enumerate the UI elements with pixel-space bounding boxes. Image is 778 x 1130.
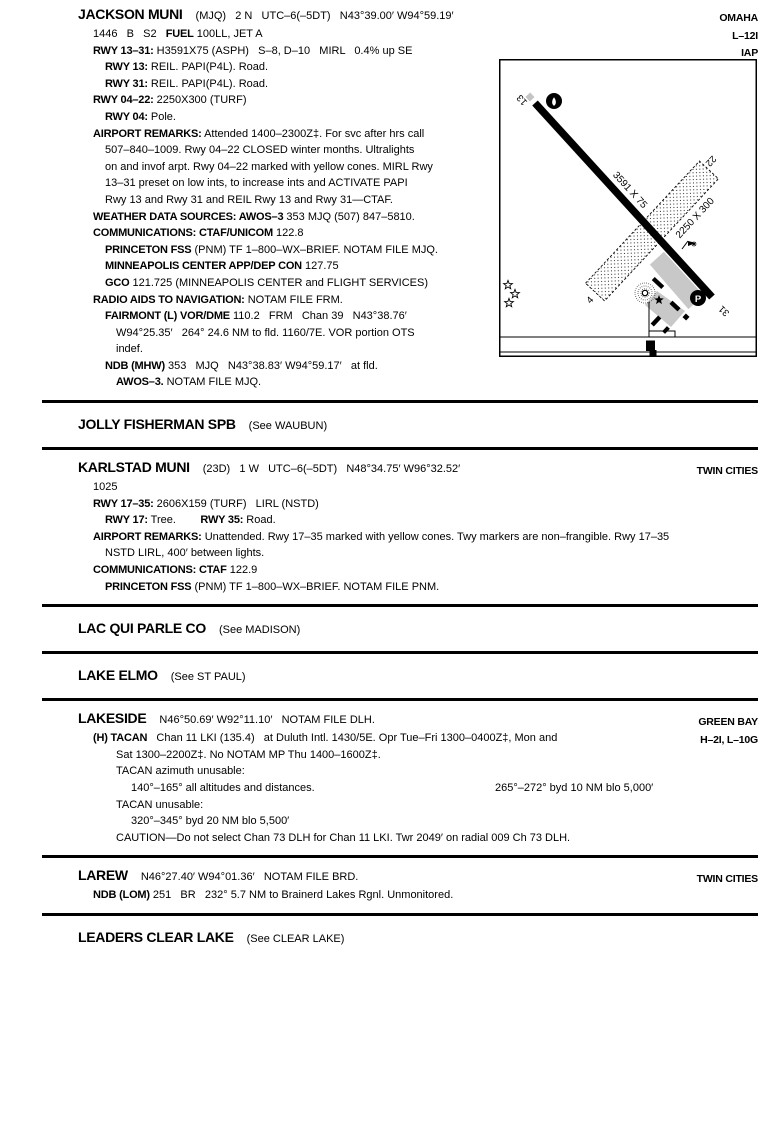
airport-name: LAKE ELMO (78, 667, 158, 683)
text-run: 110.2 FRM Chan 39 N43°38.76′ (230, 310, 407, 322)
airport-name: JACKSON MUNI (78, 6, 183, 22)
text-run: W94°25.35′ 264° 24.6 NM to fld. 1160/7E.… (116, 327, 415, 339)
chart-reference: TWIN CITIES (697, 869, 758, 889)
entry-line: TACAN unusable: (78, 797, 758, 814)
airport-name: JOLLY FISHERMAN SPB (78, 416, 236, 432)
text-run: 127.75 (302, 260, 339, 272)
text-run: NOTAM FILE MJQ. (164, 376, 262, 388)
airport-name: LAC QUI PARLE CO (78, 620, 206, 636)
text-run: Tree. (148, 514, 201, 526)
bold-label: MINNEAPOLIS CENTER APP/DEP CON (105, 260, 302, 272)
text-run: REIL. PAPI(P4L). Road. (148, 78, 268, 90)
entry-jolly-fisherman-spb: JOLLY FISHERMAN SPB(See WAUBUN) (78, 410, 758, 441)
entry-line: RWY 17–35: 2606X159 (TURF) LIRL (NSTD) (78, 496, 758, 513)
heading-suffix: (23D) 1 W UTC–6(–5DT) N48°34.75′ W96°32.… (190, 463, 460, 475)
heading-suffix: (See CLEAR LAKE) (234, 933, 345, 945)
entry-line: RWY 13–31: H3591X75 (ASPH) S–8, D–10 MIR… (78, 43, 758, 60)
bold-label: AWOS–3. (116, 376, 164, 388)
bold-label: AIRPORT REMARKS: (93, 531, 202, 543)
airport-name: LAREW (78, 867, 128, 883)
entry-lakeside: LAKESIDEN46°50.69′ W92°11.10′ NOTAM FILE… (78, 708, 758, 849)
section-divider (42, 698, 758, 701)
text-run: Unattended. Rwy 17–35 marked with yellow… (202, 531, 670, 543)
text-run: 265°–272° byd 10 NM blo 5,000′ (495, 780, 653, 797)
bold-label: RWY 31: (105, 78, 148, 90)
entry-line: RWY 17: Tree. RWY 35: Road. (78, 512, 758, 529)
bold-label: COMMUNICATIONS: CTAF (93, 564, 227, 576)
text-run: Road. (243, 514, 275, 526)
bold-label: AIRPORT REMARKS: (93, 128, 202, 140)
text-run: Rwy 13 and Rwy 31 and REIL Rwy 13 and Rw… (105, 194, 393, 206)
bold-label: RWY 13: (105, 61, 148, 73)
bold-label: RWY 04–22: (93, 94, 154, 106)
heading-suffix: (See ST PAUL) (158, 671, 246, 683)
text-run: 140°–165° all altitudes and distances. (131, 782, 315, 794)
text-run: 2250X300 (TURF) (154, 94, 247, 106)
bold-label: FUEL (166, 28, 194, 40)
text-run: 507–840–1009. Rwy 04–22 CLOSED winter mo… (105, 144, 414, 156)
text-run: NOTAM FILE FRM. (245, 294, 343, 306)
text-run: 122.9 (227, 564, 258, 576)
entry-line: PRINCETON FSS (PNM) TF 1–800–WX–BRIEF. N… (78, 579, 758, 596)
entry-heading: LAKE ELMO(See ST PAUL) (78, 665, 758, 687)
text-run: on and invof arpt. Rwy 04–22 marked with… (105, 161, 433, 173)
airport-sketch: 13 31 22 4 3591 X 75 2250 X 300 P (499, 59, 757, 357)
airport-name: LEADERS CLEAR LAKE (78, 929, 234, 945)
text-run: H3591X75 (ASPH) S–8, D–10 MIRL 0.4% up S… (154, 45, 413, 57)
entry-line: TACAN azimuth unusable: (78, 763, 758, 780)
section-divider (42, 447, 758, 450)
section-divider (42, 855, 758, 858)
text-run: (PNM) TF 1–800–WX–BRIEF. NOTAM FILE MJQ. (191, 244, 438, 256)
text-run: 122.8 (273, 227, 304, 239)
entry-lac-qui-parle-co: LAC QUI PARLE CO(See MADISON) (78, 614, 758, 645)
text-run: 320°–345° byd 20 NM blo 5,500′ (131, 815, 289, 827)
road-building (650, 350, 657, 356)
text-run: 2606X159 (TURF) LIRL (NSTD) (154, 498, 319, 510)
bold-label: NDB (MHW) (105, 360, 165, 372)
entry-larew: LAREWN46°27.40′ W94°01.36′ NOTAM FILE BR… (78, 865, 758, 907)
road-building (646, 341, 655, 352)
section-divider (42, 400, 758, 403)
entry-heading: LAREWN46°27.40′ W94°01.36′ NOTAM FILE BR… (78, 865, 758, 887)
bold-label: FAIRMONT (L) VOR/DME (105, 310, 230, 322)
bold-label: NDB (LOM) (93, 889, 150, 901)
chart-reference: OMAHA (719, 8, 758, 28)
bold-label: RADIO AIDS TO NAVIGATION: (93, 294, 245, 306)
entry-heading: LAC QUI PARLE CO(See MADISON) (78, 618, 758, 640)
text-run: TACAN unusable: (116, 799, 203, 811)
bold-label: RWY 13–31: (93, 45, 154, 57)
entry-heading: LEADERS CLEAR LAKE(See CLEAR LAKE) (78, 927, 758, 949)
teardrop-marker-icon (546, 93, 562, 109)
bold-label: PRINCETON FSS (105, 244, 191, 256)
text-run: 1446 B S2 (93, 28, 166, 40)
parking-icon: P (690, 290, 706, 306)
heading-suffix: N46°27.40′ W94°01.36′ NOTAM FILE BRD. (128, 871, 359, 883)
entry-karlstad-muni: KARLSTAD MUNI(23D) 1 W UTC–6(–5DT) N48°3… (78, 457, 758, 598)
bold-label: WEATHER DATA SOURCES: AWOS–3 (93, 211, 283, 223)
bold-label: RWY 35: (200, 514, 243, 526)
heading-suffix: (See WAUBUN) (236, 420, 327, 432)
text-run: TACAN azimuth unusable: (116, 765, 245, 777)
text-run: 13–31 preset on low ints, to increase in… (105, 177, 408, 189)
heading-suffix: N46°50.69′ W92°11.10′ NOTAM FILE DLH. (146, 714, 375, 726)
bold-label: GCO (105, 277, 129, 289)
airport-name: KARLSTAD MUNI (78, 459, 190, 475)
text-run: 353 MJQ N43°38.83′ W94°59.17′ at fld. (165, 360, 378, 372)
entry-line: AWOS–3. NOTAM FILE MJQ. (78, 374, 758, 391)
text-run: indef. (116, 343, 143, 355)
svg-text:P: P (695, 294, 702, 305)
text-run: 100LL, JET A (194, 28, 263, 40)
bold-label: RWY 17–35: (93, 498, 154, 510)
text-run: REIL. PAPI(P4L). Road. (148, 61, 268, 73)
heading-suffix: (See MADISON) (206, 624, 300, 636)
text-run: Pole. (148, 111, 176, 123)
entry-leaders-clear-lake: LEADERS CLEAR LAKE(See CLEAR LAKE) (78, 923, 758, 954)
heading-suffix: (MJQ) 2 N UTC–6(–5DT) N43°39.00′ W94°59.… (183, 10, 454, 22)
text-run: CAUTION—Do not select Chan 73 DLH for Ch… (116, 832, 570, 844)
entry-line: NSTD LIRL, 400′ between lights. (78, 545, 758, 562)
text-run: (PNM) TF 1–800–WX–BRIEF. NOTAM FILE PNM. (191, 581, 439, 593)
entry-line: COMMUNICATIONS: CTAF 122.9 (78, 562, 758, 579)
entry-line: 320°–345° byd 20 NM blo 5,500′ (78, 813, 758, 830)
section-divider (42, 651, 758, 654)
text-run: Attended 1400–2300Z‡. For svc after hrs … (202, 128, 425, 140)
chart-reference: TWIN CITIES (697, 461, 758, 481)
text-run: 1025 (93, 481, 117, 493)
bold-label: PRINCETON FSS (105, 581, 191, 593)
section-divider (42, 913, 758, 916)
entry-heading: LAKESIDEN46°50.69′ W92°11.10′ NOTAM FILE… (78, 708, 758, 730)
entry-line: 1446 B S2 FUEL 100LL, JET AL–12I (78, 26, 758, 43)
entry-heading: JACKSON MUNI(MJQ) 2 N UTC–6(–5DT) N43°39… (78, 4, 758, 26)
entry-lake-elmo: LAKE ELMO(See ST PAUL) (78, 661, 758, 692)
entry-line: AIRPORT REMARKS: Unattended. Rwy 17–35 m… (78, 529, 758, 546)
entry-line: CAUTION—Do not select Chan 73 DLH for Ch… (78, 830, 758, 847)
entry-heading: KARLSTAD MUNI(23D) 1 W UTC–6(–5DT) N48°3… (78, 457, 758, 479)
text-run: NSTD LIRL, 400′ between lights. (105, 547, 264, 559)
entry-line: 140°–165° all altitudes and distances.26… (78, 780, 758, 797)
entry-heading: JOLLY FISHERMAN SPB(See WAUBUN) (78, 414, 758, 436)
text-run: Sat 1300–2200Z‡. No NOTAM MP Thu 1400–16… (116, 749, 381, 761)
entry-line: (H) TACAN Chan 11 LKI (135.4) at Duluth … (78, 730, 758, 747)
text-run: 251 BR 232° 5.7 NM to Brainerd Lakes Rgn… (150, 889, 453, 901)
bold-label: RWY 17: (105, 514, 148, 526)
chart-reference: GREEN BAY (698, 712, 758, 732)
entry-line: 1025 (78, 479, 758, 496)
entry-line: NDB (LOM) 251 BR 232° 5.7 NM to Brainerd… (78, 887, 758, 904)
text-run: 353 MJQ (507) 847–5810. (283, 211, 414, 223)
bold-label: RWY 04: (105, 111, 148, 123)
bold-label: COMMUNICATIONS: CTAF/UNICOM (93, 227, 273, 239)
bold-label: (H) TACAN (93, 732, 147, 744)
text-run: 121.725 (MINNEAPOLIS CENTER and FLIGHT S… (129, 277, 428, 289)
entry-line: NDB (MHW) 353 MJQ N43°38.83′ W94°59.17′ … (78, 358, 758, 375)
section-divider (42, 604, 758, 607)
airport-name: LAKESIDE (78, 710, 146, 726)
entry-line: Sat 1300–2200Z‡. No NOTAM MP Thu 1400–16… (78, 747, 758, 764)
text-run: Chan 11 LKI (135.4) at Duluth Intl. 1430… (147, 732, 557, 744)
